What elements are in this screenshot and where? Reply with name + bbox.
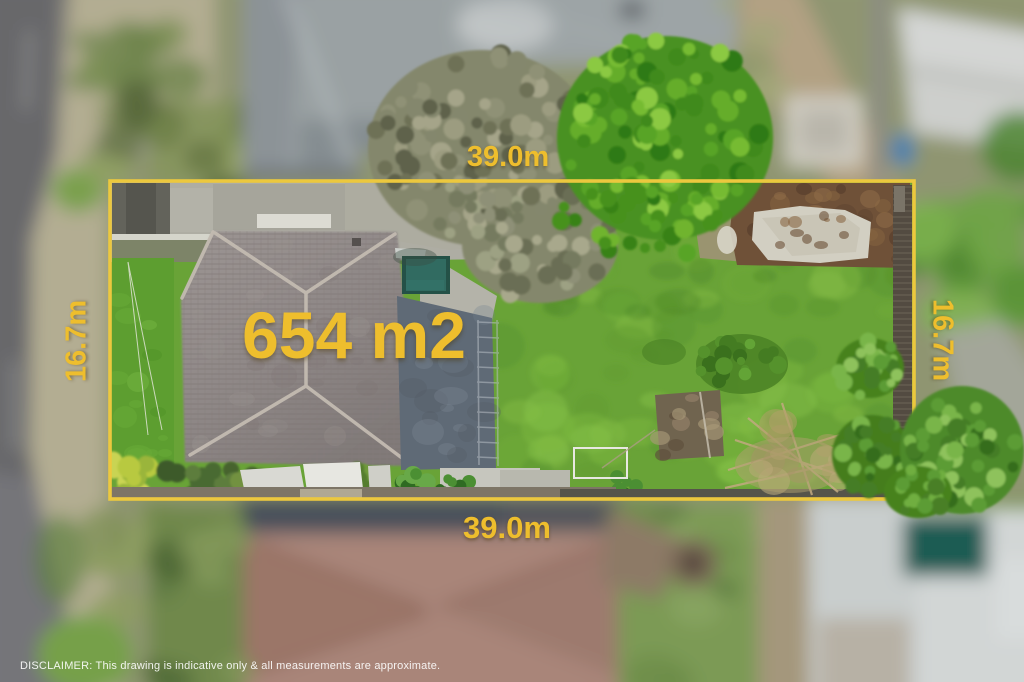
svg-text:DISCLAIMER: This drawing is in: DISCLAIMER: This drawing is indicative o… [20, 660, 440, 672]
svg-text:39.0m: 39.0m [463, 510, 551, 545]
svg-text:39.0m: 39.0m [467, 141, 549, 173]
svg-text:16.7m: 16.7m [61, 300, 93, 382]
svg-text:16.7m: 16.7m [926, 299, 958, 381]
svg-text:654 m2: 654 m2 [242, 298, 466, 372]
